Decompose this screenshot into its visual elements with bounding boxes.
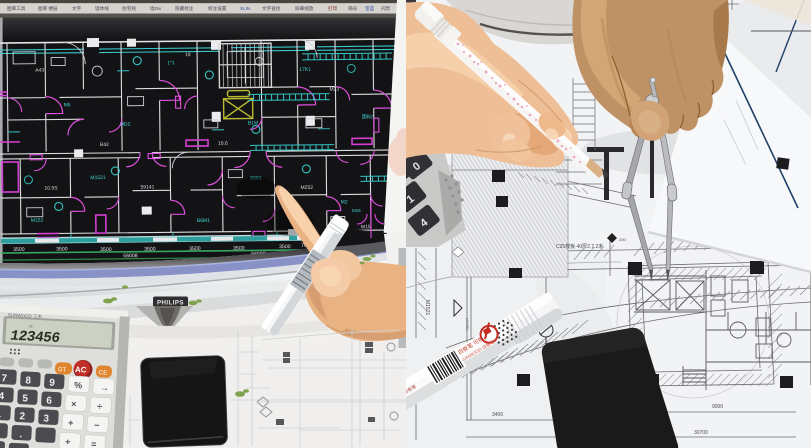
svg-text:文字: 文字 (72, 5, 82, 12)
svg-text:隐藏标注: 隐藏标注 (175, 5, 194, 12)
svg-text:A43: A43 (35, 68, 44, 74)
svg-text:3: 3 (43, 413, 50, 424)
svg-text:7: 7 (1, 373, 8, 384)
svg-text:3400: 3400 (492, 412, 503, 418)
svg-text:宣蓝: 宣蓝 (365, 5, 375, 12)
svg-text:墙Div: 墙Div (150, 5, 162, 12)
svg-text:10.5S: 10.5S (44, 185, 58, 191)
svg-text:CE: CE (99, 370, 108, 376)
svg-text:XLIN: XLIN (240, 6, 250, 11)
svg-text:+: + (65, 437, 71, 447)
svg-text:3500: 3500 (189, 246, 201, 252)
svg-text:56008: 56008 (123, 253, 138, 259)
svg-text:200: 200 (619, 237, 626, 242)
svg-text:8: 8 (25, 375, 32, 386)
svg-text:2: 2 (19, 411, 26, 422)
svg-text:AC: AC (75, 365, 87, 375)
svg-text:M252: M252 (300, 185, 313, 191)
svg-text:%: % (74, 380, 83, 390)
svg-text:3500: 3500 (100, 247, 112, 253)
svg-text:图库 楼层: 图库 楼层 (38, 5, 58, 12)
svg-text:×: × (71, 399, 77, 409)
svg-text:17K1: 17K1 (299, 67, 311, 73)
svg-text:16.6: 16.6 (218, 141, 228, 147)
svg-text:1*1: 1*1 (167, 60, 175, 66)
svg-text:C25楼板 40厚2.7.2未: C25楼板 40厚2.7.2未 (556, 243, 603, 250)
svg-text:9: 9 (49, 378, 56, 389)
svg-text:123456: 123456 (9, 329, 61, 347)
svg-text:M2: M2 (341, 199, 348, 205)
svg-text:住宅线: 住宅线 (122, 5, 136, 11)
svg-text:文字查找: 文字查找 (262, 5, 281, 12)
svg-text:隔号: 隔号 (348, 5, 358, 12)
svg-text:59141: 59141 (140, 184, 154, 190)
svg-text:闪烁: 闪烁 (381, 5, 391, 11)
svg-text:M5: M5 (64, 102, 71, 108)
svg-text:标注设置: 标注设置 (208, 5, 227, 12)
svg-text:9000: 9000 (712, 404, 723, 410)
svg-text:3500: 3500 (13, 247, 25, 253)
svg-text:M23: M23 (329, 87, 339, 93)
svg-text:M152: M152 (31, 218, 44, 224)
svg-text:3500: 3500 (144, 246, 156, 252)
svg-text:3500: 3500 (56, 246, 68, 252)
svg-text:GT: GT (58, 367, 67, 373)
svg-text:M: M (29, 324, 33, 329)
svg-text:18: 18 (185, 52, 191, 58)
svg-text:国B2: 国B2 (362, 114, 373, 120)
svg-text:B42: B42 (100, 142, 109, 148)
svg-text:3500: 3500 (233, 246, 245, 252)
svg-text:图库工具: 图库工具 (7, 5, 26, 12)
svg-text:5: 5 (22, 393, 29, 404)
svg-text:6: 6 (46, 396, 53, 407)
svg-text:=: = (91, 439, 97, 448)
svg-text:−: − (94, 420, 100, 430)
svg-text:打印: 打印 (328, 5, 338, 12)
svg-text:M15: M15 (352, 208, 361, 213)
svg-text:M15: M15 (361, 224, 371, 230)
svg-text:3500: 3500 (279, 244, 291, 250)
svg-text:30700: 30700 (694, 430, 708, 436)
svg-text:÷: ÷ (97, 401, 103, 411)
svg-text:M1521: M1521 (424, 300, 430, 316)
svg-text:PHILIPS: PHILIPS (157, 300, 184, 307)
svg-text:B6M1: B6M1 (197, 218, 210, 224)
svg-text:M1521: M1521 (90, 175, 106, 181)
svg-text:LW152: LW152 (465, 318, 470, 331)
svg-text:+: + (68, 418, 74, 428)
svg-text:→: → (100, 382, 110, 392)
svg-text:屏幕缩放: 屏幕缩放 (295, 5, 314, 12)
svg-text:B1M: B1M (248, 120, 258, 126)
svg-text:墙体线: 墙体线 (95, 5, 109, 12)
